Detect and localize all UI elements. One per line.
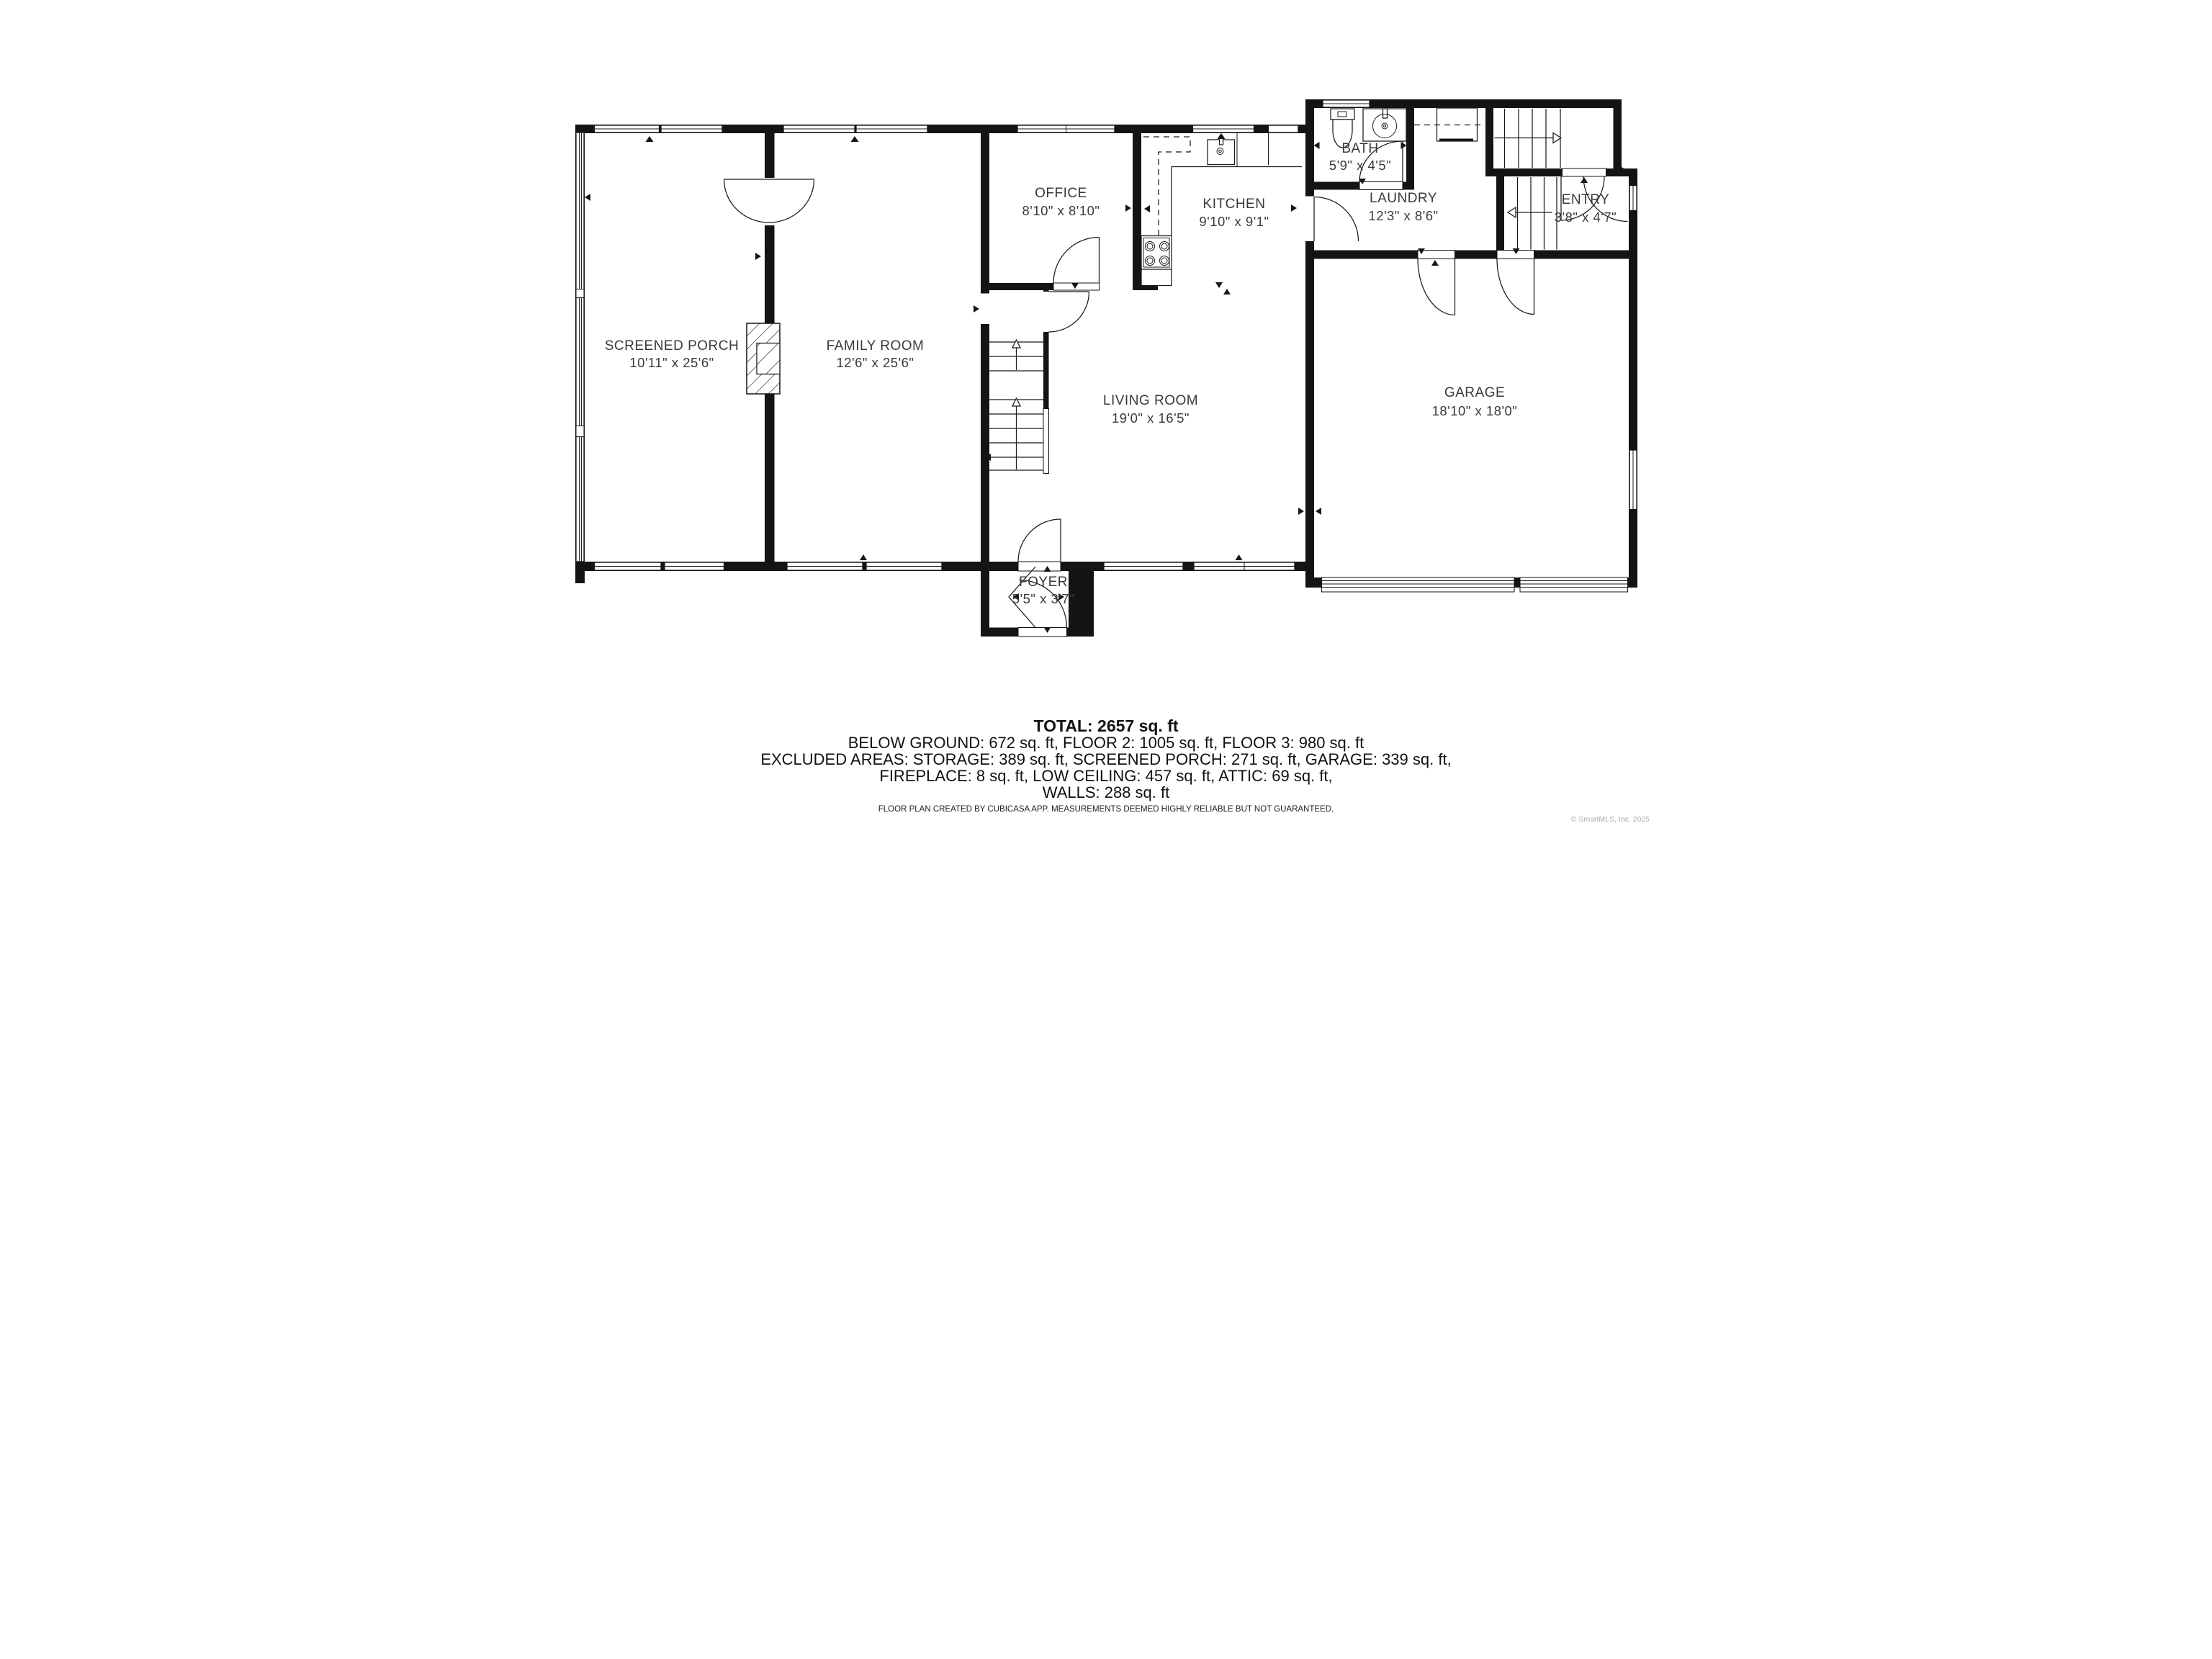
room-label-garage: GARAGE	[1444, 385, 1505, 400]
room-dims-bath: 5'9" x 4'5"	[1329, 158, 1391, 173]
window	[576, 437, 584, 562]
garage-door	[1520, 577, 1628, 592]
wall-opening	[981, 294, 989, 325]
room-label-bath: BATH	[1341, 141, 1378, 156]
summary-line: BELOW GROUND: 672 sq. ft, FLOOR 2: 1005 …	[848, 734, 1364, 752]
door-opening	[1305, 197, 1314, 242]
garage-door	[1322, 577, 1515, 592]
room-label-family-room: FAMILY ROOM	[827, 338, 925, 354]
fireplace	[747, 323, 780, 394]
room-label-office: OFFICE	[1035, 186, 1087, 201]
room-label-entry: ENTRY	[1562, 192, 1610, 207]
kitchen-cabinet	[1141, 269, 1172, 286]
fireplace-inner	[757, 343, 780, 374]
room-dims-entry: 3'8" x 4'7"	[1555, 210, 1617, 225]
disclaimer-text: FLOOR PLAN CREATED BY CUBICASA APP. MEAS…	[878, 805, 1334, 814]
window-mullion	[576, 289, 584, 298]
room-dims-foyer: 5'5" x 3'7"	[1012, 591, 1074, 606]
window-mullion	[576, 426, 584, 437]
door-sill	[1018, 628, 1067, 637]
summary-line: EXCLUDED AREAS: STORAGE: 389 sq. ft, SCR…	[760, 750, 1451, 768]
door-sill	[1359, 182, 1403, 190]
room-label-laundry: LAUNDRY	[1370, 191, 1437, 206]
window	[576, 298, 584, 428]
room-dims-garage: 18'10" x 18'0"	[1432, 403, 1518, 418]
summary-line: FIREPLACE: 8 sq. ft, LOW CEILING: 457 sq…	[879, 767, 1332, 785]
toilet-tank	[1331, 109, 1354, 120]
garage-doors	[1322, 577, 1628, 592]
room-label-living-room: LIVING ROOM	[1103, 393, 1198, 408]
bathroom-faucet	[1383, 109, 1388, 118]
room-dims-laundry: 12'3" x 8'6"	[1368, 208, 1438, 223]
room-label-foyer: FOYER	[1019, 575, 1068, 590]
door-opening	[1043, 292, 1050, 332]
door-sill	[1418, 251, 1455, 259]
door-sill	[1563, 168, 1606, 176]
room-label-kitchen: KITCHEN	[1203, 197, 1266, 212]
window	[576, 132, 584, 291]
room-label-screened-porch: SCREENED PORCH	[605, 338, 739, 354]
room-dims-office: 8'10" x 8'10"	[1022, 203, 1100, 218]
copyright-text: © SmartMLS, Inc. 2025	[1571, 815, 1650, 824]
summary-total: TOTAL: 2657 sq. ft	[1033, 716, 1178, 735]
room-dims-family-room: 12'6" x 25'6"	[837, 355, 914, 370]
floor-plan-page: SCREENED PORCH 10'11" x 25'6" FAMILY ROO…	[553, 0, 1659, 829]
room-dims-kitchen: 9'10" x 9'1"	[1199, 214, 1269, 229]
door-sill	[1018, 562, 1061, 571]
room-dims-living-room: 19'0" x 16'5"	[1112, 410, 1190, 426]
room-dims-screened-porch: 10'11" x 25'6"	[629, 355, 714, 370]
summary-line: WALLS: 288 sq. ft	[1043, 783, 1170, 801]
window	[1269, 125, 1299, 132]
floor-plan: SCREENED PORCH 10'11" x 25'6" FAMILY ROO…	[553, 0, 1659, 829]
door-opening	[764, 178, 775, 225]
stair-rail	[1043, 409, 1049, 474]
